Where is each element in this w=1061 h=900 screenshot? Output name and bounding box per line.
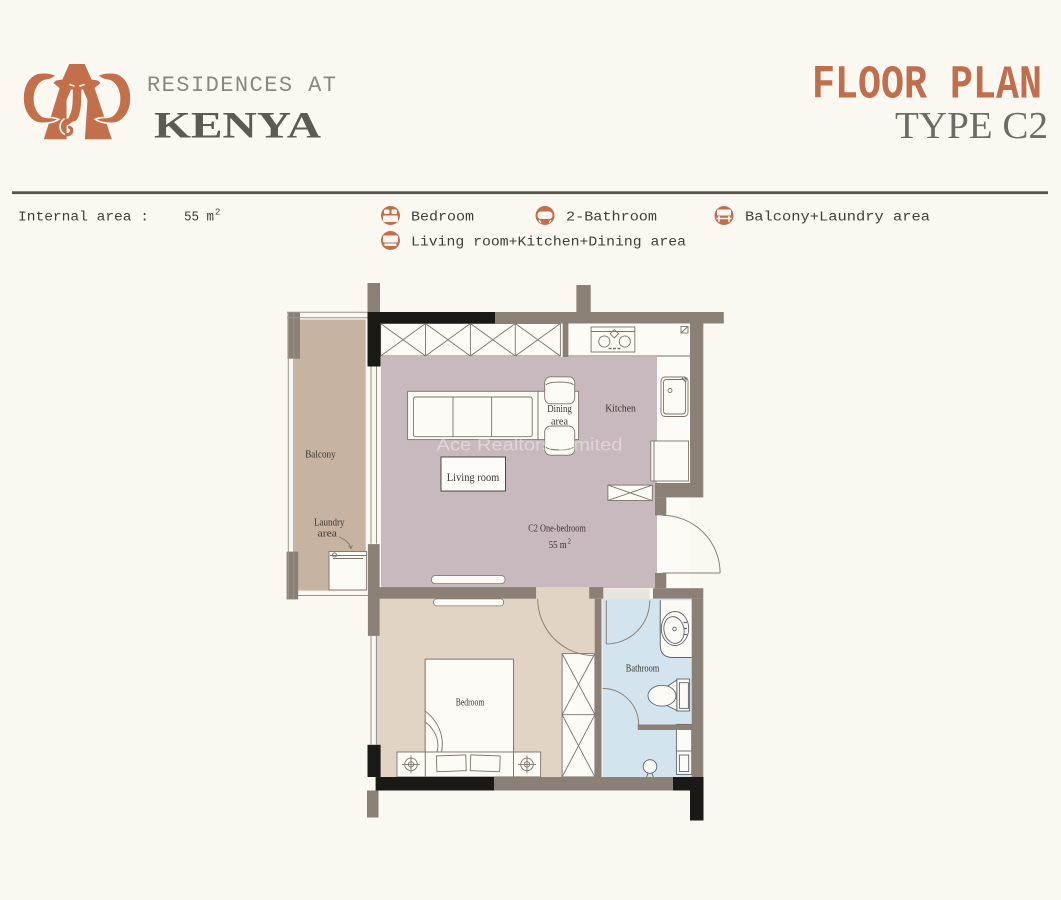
svg-text:KENYA: KENYA (154, 106, 321, 147)
svg-text:Balcony+Laundry area: Balcony+Laundry area (745, 211, 930, 226)
svg-text:C2 One-bedroom: C2 One-bedroom (528, 523, 586, 535)
svg-text:Bathroom: Bathroom (626, 663, 660, 675)
svg-text:Bedroom: Bedroom (411, 211, 474, 226)
svg-text:RESIDENCES AT: RESIDENCES AT (147, 73, 336, 98)
svg-text:2-Bathroom: 2-Bathroom (566, 211, 657, 226)
svg-text:Ace Realtors Limited: Ace Realtors Limited (437, 435, 623, 455)
svg-text:Internal area :: Internal area : (18, 211, 149, 226)
svg-text:Living room: Living room (447, 472, 500, 484)
svg-text:2: 2 (568, 538, 572, 546)
svg-text:Kitchen: Kitchen (605, 403, 636, 415)
svg-text:Living room+Kitchen+Dining are: Living room+Kitchen+Dining area (411, 236, 686, 251)
svg-text:Balcony: Balcony (305, 449, 336, 461)
svg-text:Bedroom: Bedroom (456, 697, 485, 709)
svg-text:55 m: 55 m (184, 211, 214, 226)
svg-text:2: 2 (215, 208, 220, 218)
svg-text:area: area (318, 528, 338, 540)
svg-text:area: area (551, 416, 568, 428)
svg-text:55 m: 55 m (549, 539, 567, 551)
svg-text:TYPE C2: TYPE C2 (895, 105, 1048, 147)
svg-text:Dining: Dining (547, 403, 572, 415)
